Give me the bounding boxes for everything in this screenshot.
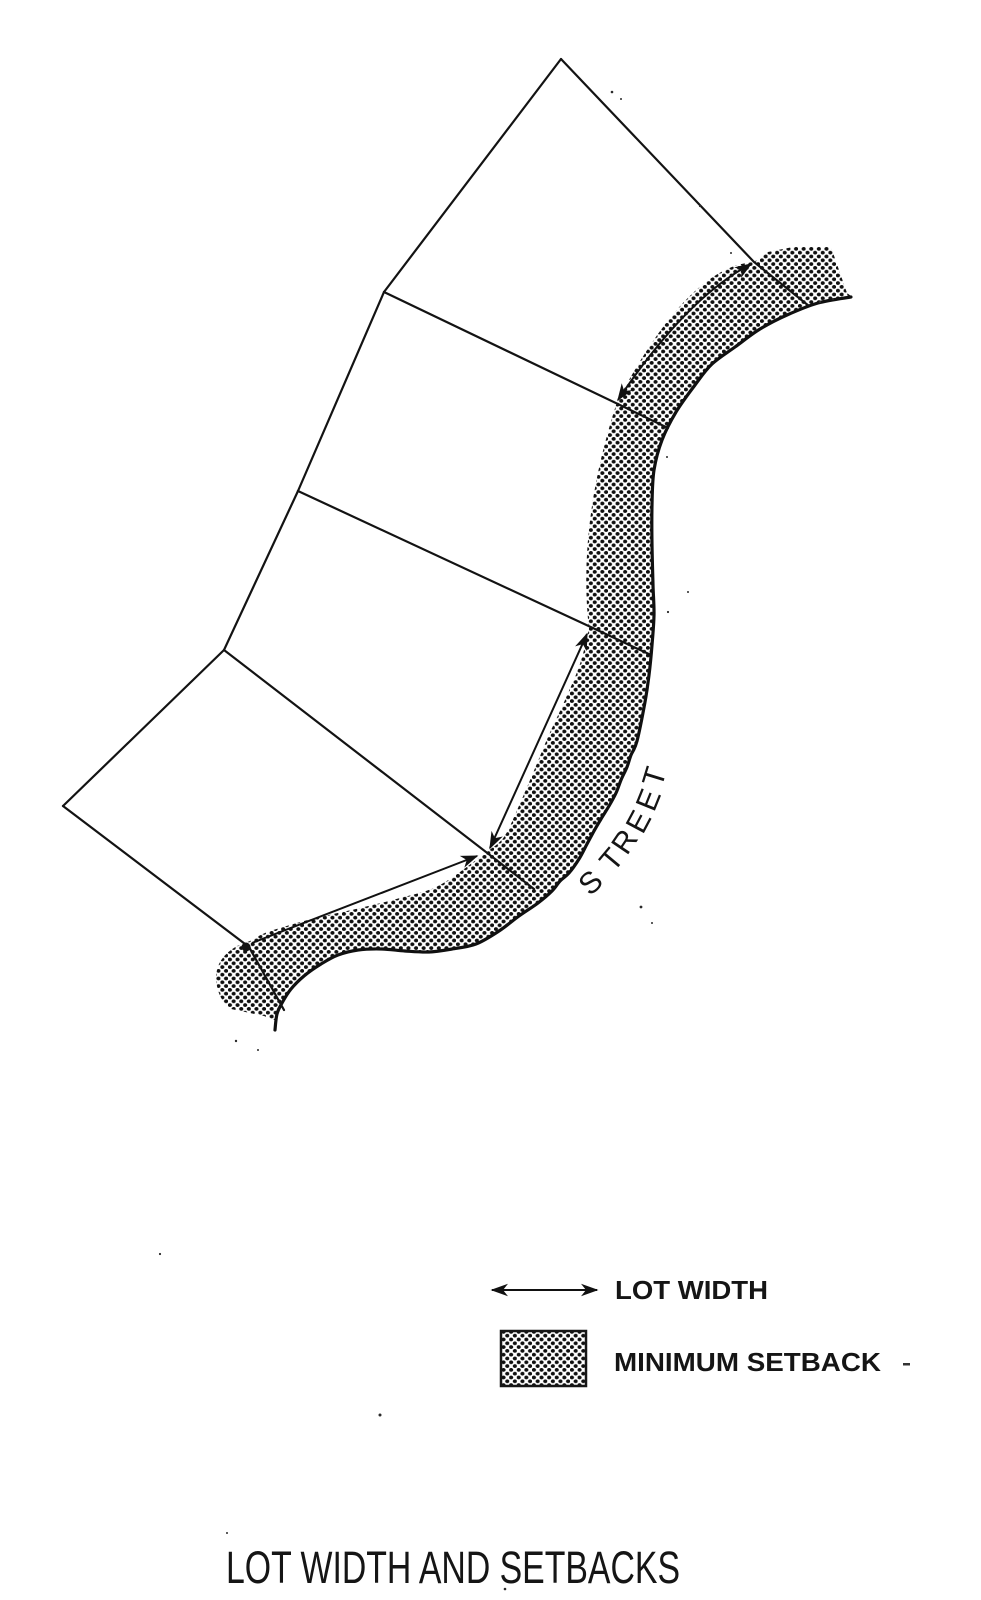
svg-text:LOT WIDTH: LOT WIDTH (615, 1275, 768, 1305)
svg-text:LOT WIDTH AND SETBACKS: LOT WIDTH AND SETBACKS (226, 1542, 680, 1593)
svg-text:S: S (572, 864, 609, 902)
svg-text:MINIMUM SETBACK: MINIMUM SETBACK (614, 1347, 881, 1377)
